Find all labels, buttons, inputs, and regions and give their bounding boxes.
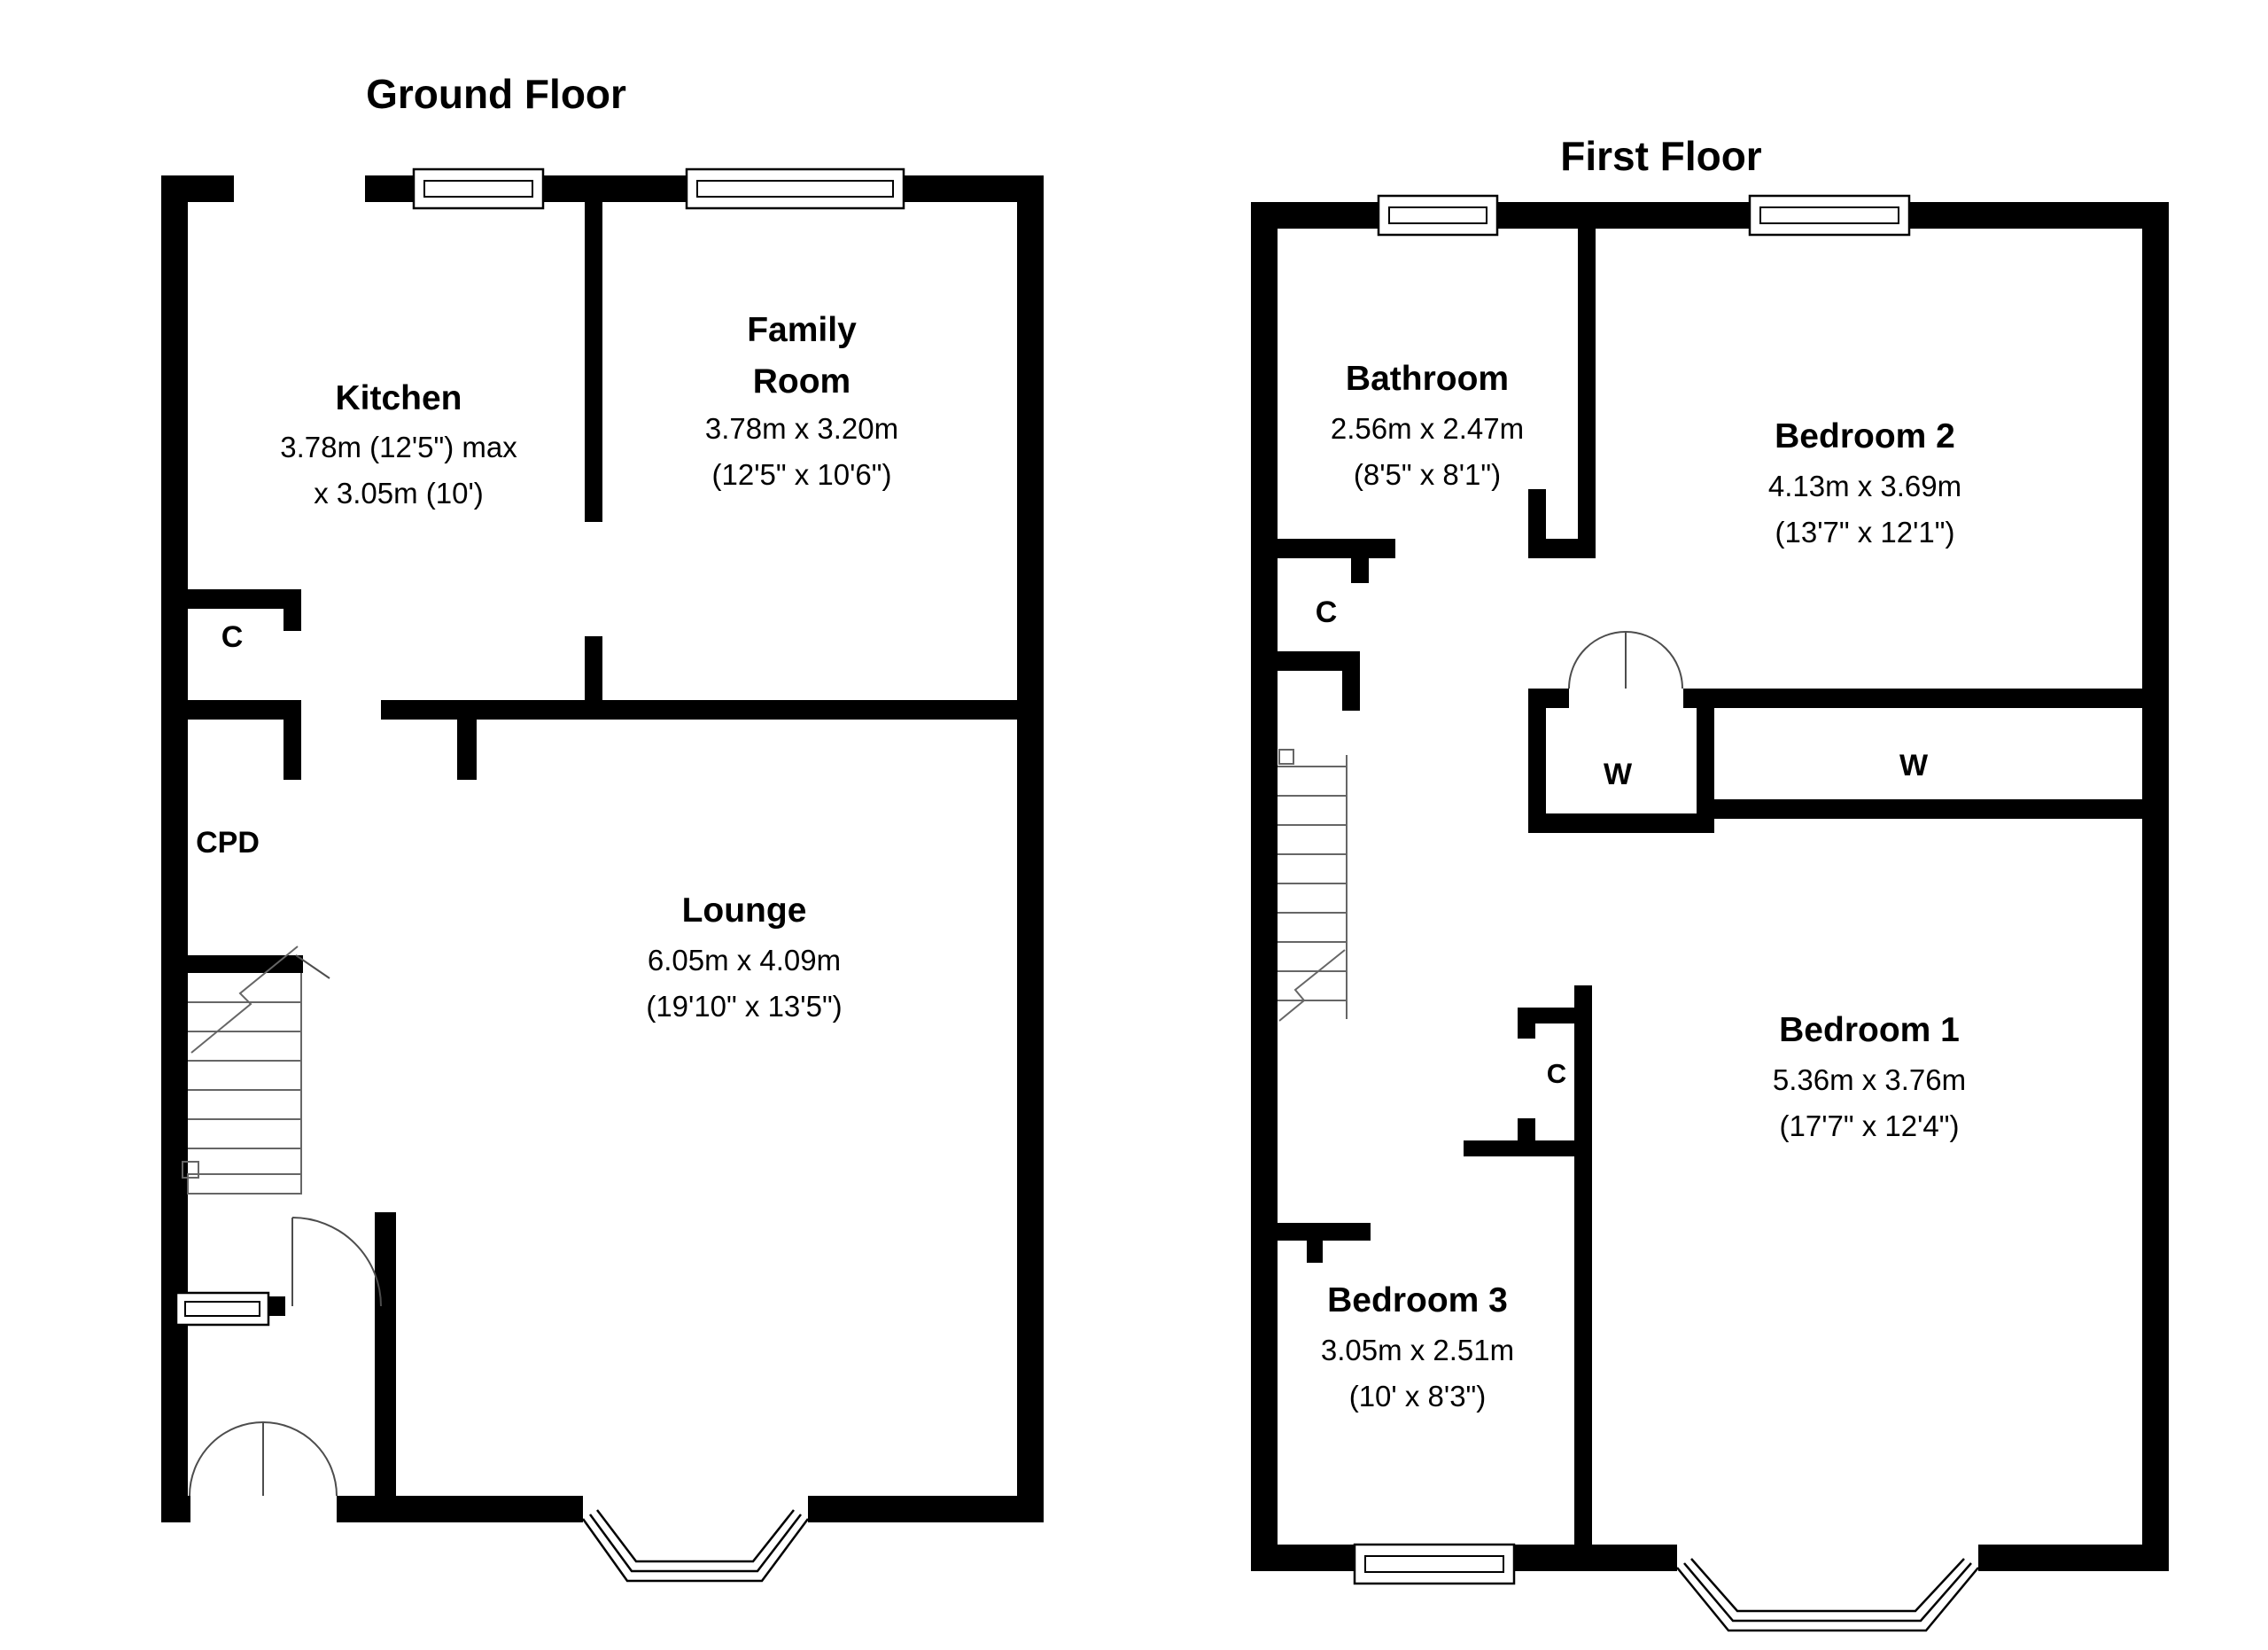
- lounge-dim-metric: 6.05m x 4.09m: [648, 944, 841, 977]
- closet-label-c-landing: C: [1316, 595, 1338, 629]
- first-staircase-icon: [1278, 750, 1347, 1021]
- floor-plan: Ground Floor: [0, 0, 2268, 1650]
- bedroom2-dim-imperial: (13'7" x 12'1"): [1775, 516, 1955, 549]
- closet-label-c-bedroom1: C: [1547, 1058, 1566, 1089]
- wall-segment: [375, 1212, 396, 1496]
- wall-segment: [381, 700, 1017, 720]
- lounge-name: Lounge: [682, 891, 807, 930]
- bedroom2-name: Bedroom 2: [1775, 417, 1955, 455]
- family-room-dim-metric: 3.78m x 3.20m: [705, 412, 898, 445]
- kitchen-dim-metric: 3.78m (12'5") max: [280, 431, 517, 463]
- wall-segment: [2142, 229, 2169, 1571]
- family-room-window-icon: [687, 169, 904, 208]
- bedroom1-dim-imperial: (17'7" x 12'4"): [1780, 1109, 1960, 1142]
- wall-segment: [188, 955, 303, 973]
- wall-segment: [283, 609, 301, 631]
- bathroom-dim-imperial: (8'5" x 8'1"): [1354, 458, 1501, 491]
- wall-segment: [1342, 671, 1360, 711]
- wall-segment: [1574, 985, 1592, 1545]
- bedroom3-window-icon: [1355, 1545, 1514, 1584]
- first-floor-plan: First Floor: [1251, 133, 2169, 1631]
- wall-segment: [1978, 1545, 2142, 1571]
- family-room-dim-imperial: (12'5" x 10'6"): [712, 458, 892, 491]
- wall-segment: [457, 720, 477, 780]
- wall-segment: [1251, 229, 1278, 1571]
- wall-segment: [1278, 1223, 1371, 1241]
- porch-double-door-icon: [190, 1422, 337, 1496]
- ground-floor-walls: [161, 175, 1044, 1522]
- wall-segment: [1528, 813, 1714, 833]
- wall-segment: [1278, 651, 1360, 671]
- room-label-lounge: Lounge 6.05m x 4.09m (19'10" x 13'5"): [646, 891, 842, 1023]
- wall-segment: [1528, 489, 1546, 539]
- wall-segment: [1683, 689, 2142, 708]
- wall-segment: [1307, 1241, 1323, 1263]
- closet-label-w2: W: [1899, 749, 1929, 782]
- wall-segment: [1518, 1118, 1535, 1140]
- family-room-name-line2: Room: [753, 362, 851, 401]
- bedroom3-dim-metric: 3.05m x 2.51m: [1321, 1334, 1514, 1366]
- room-label-bedroom1: Bedroom 1 5.36m x 3.76m (17'7" x 12'4"): [1773, 1011, 1966, 1142]
- wall-segment: [1278, 1545, 1355, 1571]
- wall-segment: [1528, 689, 1569, 708]
- wardrobe-double-door-icon: [1569, 632, 1682, 689]
- wall-segment: [1017, 202, 1044, 1522]
- front-door-arc-icon: [292, 1218, 381, 1306]
- bedroom1-bay-window-icon: [1677, 1559, 1978, 1631]
- closet-label-w1: W: [1604, 758, 1633, 791]
- wall-segment: [1714, 799, 2142, 819]
- ground-floor-title: Ground Floor: [366, 71, 626, 117]
- first-floor-title: First Floor: [1560, 133, 1762, 179]
- room-label-bathroom: Bathroom 2.56m x 2.47m (8'5" x 8'1"): [1331, 360, 1524, 491]
- wall-segment: [161, 1496, 190, 1522]
- wall-segment: [188, 700, 288, 720]
- bathroom-window-icon: [1379, 196, 1497, 235]
- family-room-name-line1: Family: [747, 311, 857, 349]
- lounge-dim-imperial: (19'10" x 13'5"): [646, 990, 842, 1023]
- ground-floor-plan: Ground Floor: [161, 71, 1044, 1581]
- kitchen-dim-imperial: x 3.05m (10'): [314, 477, 484, 510]
- wall-segment: [188, 589, 301, 609]
- wall-segment: [1518, 1008, 1535, 1039]
- wall-segment: [585, 202, 602, 522]
- lounge-bay-window-icon: [583, 1510, 808, 1581]
- wall-segment: [1578, 229, 1596, 558]
- bedroom1-name: Bedroom 1: [1779, 1011, 1960, 1049]
- kitchen-name: Kitchen: [335, 379, 462, 417]
- wall-segment: [337, 1496, 583, 1522]
- wall-segment: [1697, 708, 1714, 833]
- wall-segment: [1278, 539, 1395, 558]
- wall-segment: [283, 700, 301, 780]
- bedroom1-dim-metric: 5.36m x 3.76m: [1773, 1063, 1966, 1096]
- wall-segment: [1464, 1140, 1574, 1156]
- room-label-kitchen: Kitchen 3.78m (12'5") max x 3.05m (10'): [280, 379, 517, 510]
- bathroom-dim-metric: 2.56m x 2.47m: [1331, 412, 1524, 445]
- bedroom2-window-icon: [1750, 196, 1909, 235]
- wall-segment: [1514, 1545, 1677, 1571]
- wall-segment: [1528, 539, 1596, 558]
- ground-staircase-icon: [183, 946, 301, 1194]
- hall-window-icon: [176, 1293, 268, 1325]
- closet-label-cpd: CPD: [196, 826, 260, 860]
- bedroom3-dim-imperial: (10' x 8'3"): [1349, 1380, 1487, 1413]
- wall-segment: [1351, 558, 1369, 583]
- bedroom2-dim-metric: 4.13m x 3.69m: [1768, 470, 1961, 502]
- room-label-family-room: Family Room 3.78m x 3.20m (12'5" x 10'6"…: [705, 311, 898, 491]
- wall-segment: [808, 1496, 1044, 1522]
- kitchen-window-icon: [414, 169, 543, 208]
- room-label-bedroom2: Bedroom 2 4.13m x 3.69m (13'7" x 12'1"): [1768, 417, 1961, 549]
- bathroom-name: Bathroom: [1346, 360, 1509, 398]
- room-label-bedroom3: Bedroom 3 3.05m x 2.51m (10' x 8'3"): [1321, 1281, 1514, 1413]
- closet-label-c-ground: C: [221, 620, 244, 654]
- bedroom3-name: Bedroom 3: [1327, 1281, 1508, 1319]
